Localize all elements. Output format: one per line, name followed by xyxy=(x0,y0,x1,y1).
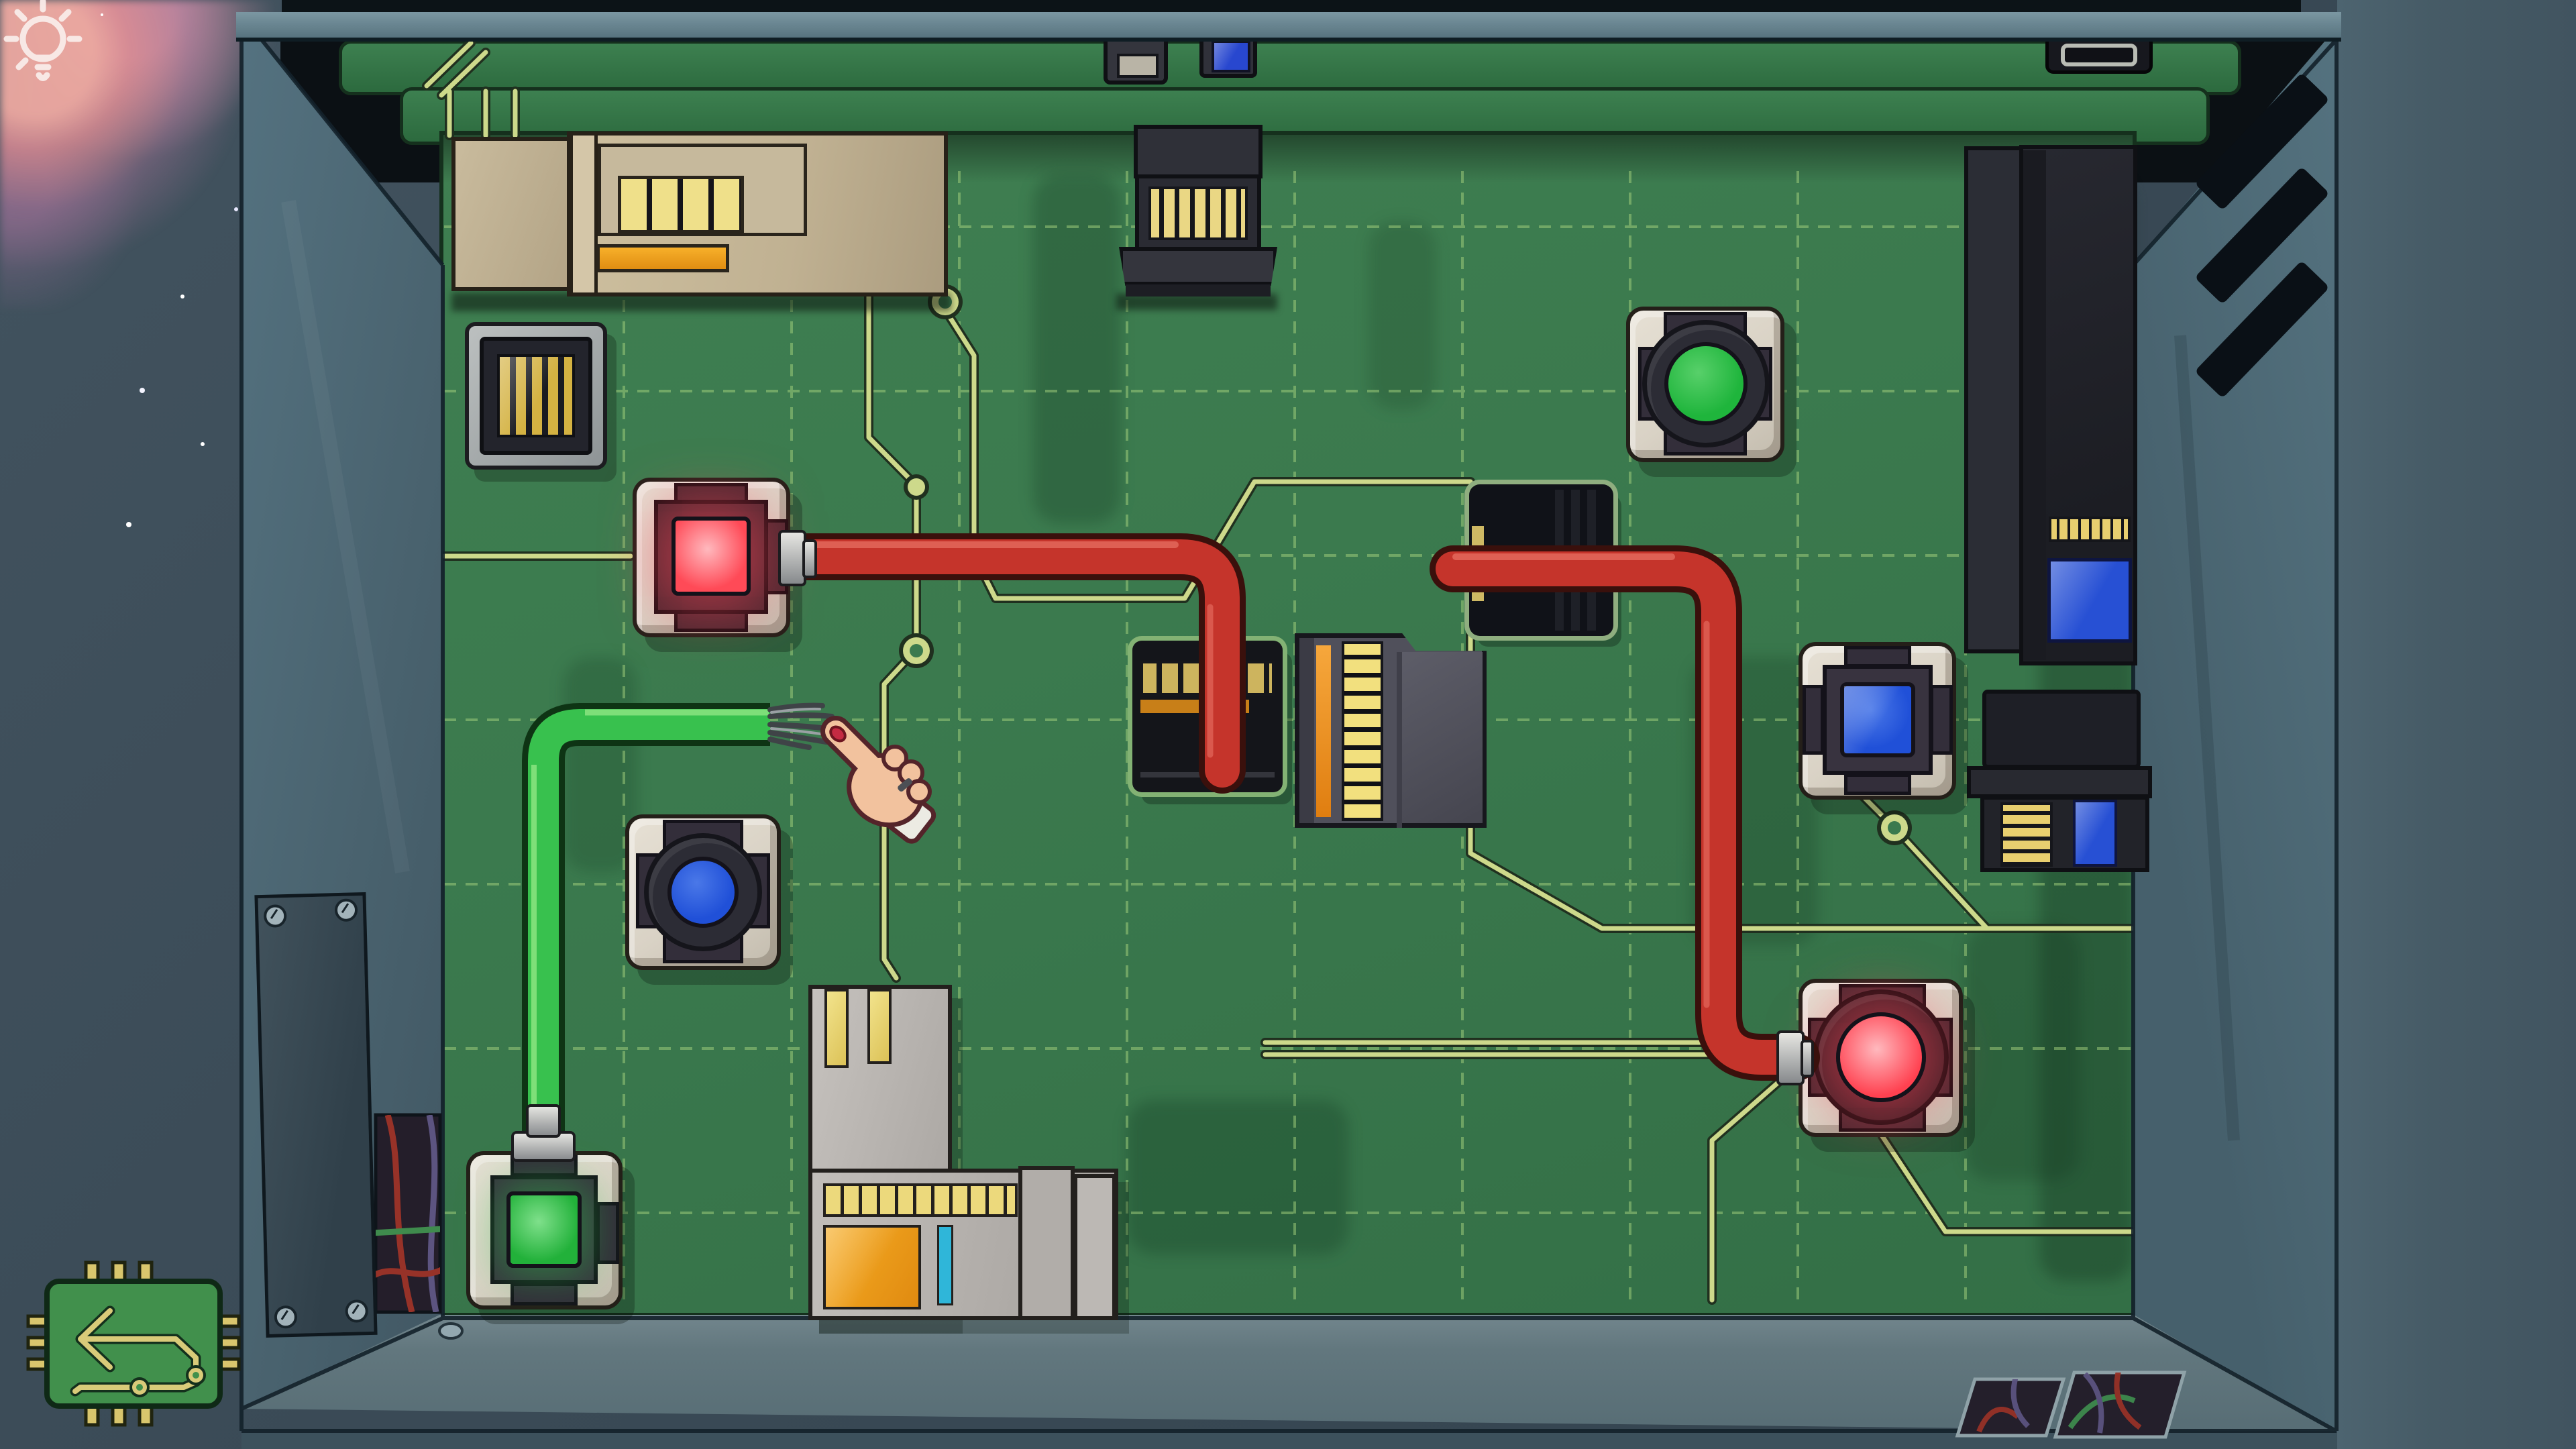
return-chip-button[interactable] xyxy=(20,1249,275,1449)
lightbulb-icon[interactable] xyxy=(7,1,79,78)
hand-cursor xyxy=(828,724,936,845)
game-scene xyxy=(0,0,2576,1449)
cursor-layer xyxy=(0,0,2576,1449)
hint-button[interactable] xyxy=(0,0,174,134)
circuit-return-chip-icon[interactable] xyxy=(28,1263,239,1425)
